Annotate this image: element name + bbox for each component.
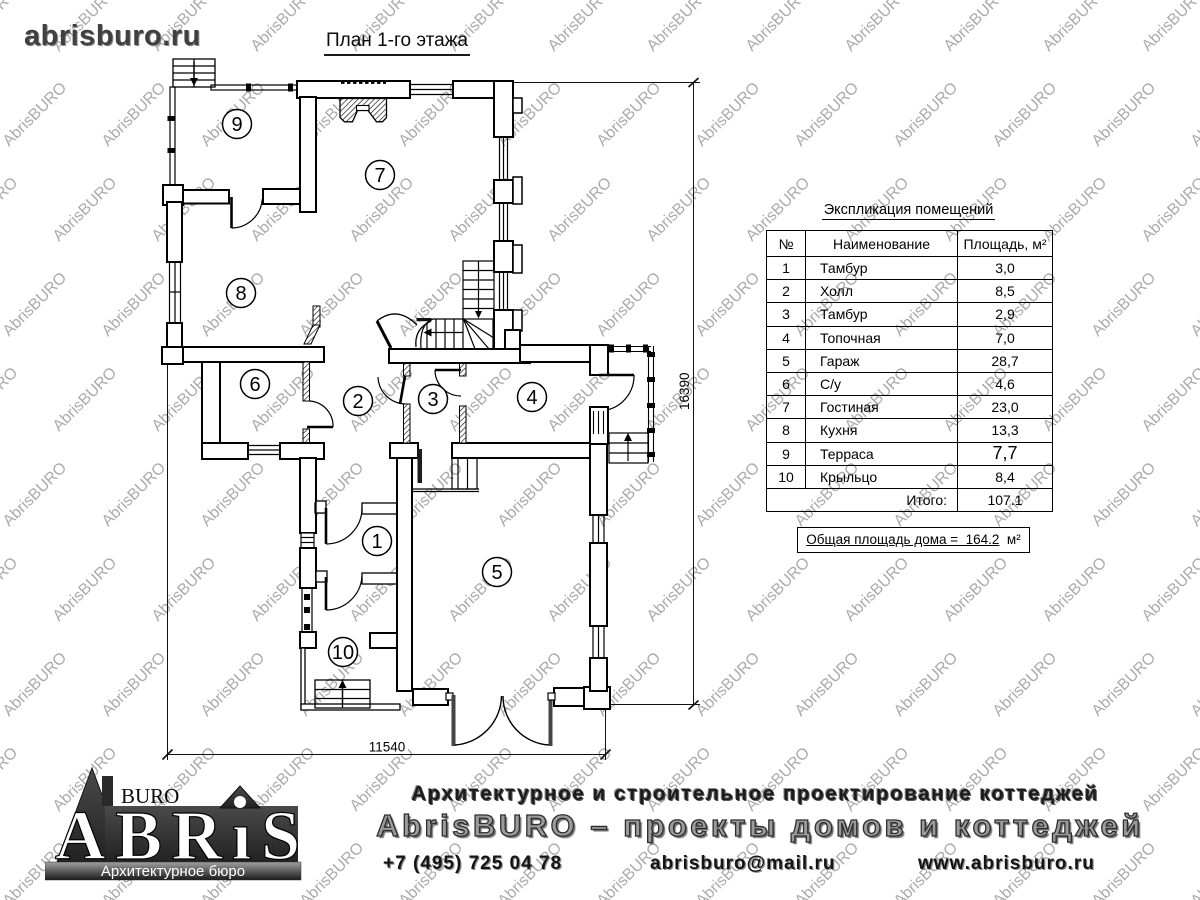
- svg-text:3: 3: [427, 389, 438, 411]
- svg-text:4: 4: [526, 387, 537, 409]
- svg-text:8: 8: [235, 283, 246, 305]
- svg-text:11540: 11540: [369, 740, 406, 755]
- svg-text:2: 2: [352, 391, 363, 413]
- svg-text:1: 1: [371, 531, 382, 553]
- svg-text:9: 9: [231, 114, 242, 136]
- svg-text:Архитектурное бюро: Архитектурное бюро: [101, 863, 245, 880]
- svg-text:6: 6: [249, 374, 260, 396]
- svg-text:16390: 16390: [677, 372, 692, 410]
- svg-text:5: 5: [491, 562, 502, 584]
- svg-text:10: 10: [332, 642, 354, 664]
- svg-text:7: 7: [374, 165, 385, 187]
